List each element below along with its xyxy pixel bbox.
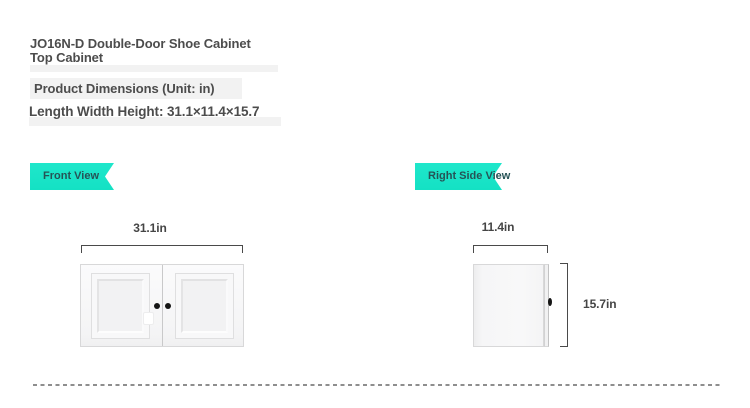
dimensions-summary: Length Width Height: 31.1×11.4×15.7 <box>29 104 259 119</box>
product-dimensions-subtitle: Product Dimensions (Unit: in) <box>30 78 242 99</box>
title-highlight-bar <box>30 65 278 72</box>
right-panel-recess <box>181 279 228 333</box>
product-title-line2: Top Cabinet <box>30 51 251 65</box>
left-panel-recess <box>97 279 144 333</box>
cabinet-right-door-panel <box>175 273 234 339</box>
right-side-view-label: Right Side View <box>428 163 510 190</box>
bottom-dashed-divider <box>33 384 721 386</box>
front-width-dimension-label: 31.1in <box>105 221 195 235</box>
right-side-view-ribbon: Right Side View <box>415 163 502 190</box>
page-title: JO16N-D Double-Door Shoe Cabinet Top Cab… <box>30 37 251 64</box>
right-door-knob <box>165 303 171 309</box>
door-divider-line <box>162 265 163 346</box>
front-view-ribbon: Front View <box>30 163 114 190</box>
cabinet-side-illustration <box>473 264 544 347</box>
side-height-dimension-bracket <box>560 263 568 347</box>
door-edge-highlight <box>143 312 154 325</box>
side-width-dimension-bracket <box>473 245 548 253</box>
side-door-knob <box>548 298 552 306</box>
cabinet-left-door-panel <box>91 273 150 339</box>
cabinet-front-illustration <box>80 264 244 347</box>
side-height-dimension-label: 15.7in <box>583 297 616 311</box>
product-title-line1: JO16N-D Double-Door Shoe Cabinet <box>30 37 251 51</box>
side-width-dimension-label: 11.4in <box>456 220 540 234</box>
front-width-dimension-bracket <box>81 245 243 253</box>
subtitle-highlight-box: Product Dimensions (Unit: in) <box>30 78 242 99</box>
front-view-label: Front View <box>43 163 99 190</box>
left-door-knob <box>154 303 160 309</box>
